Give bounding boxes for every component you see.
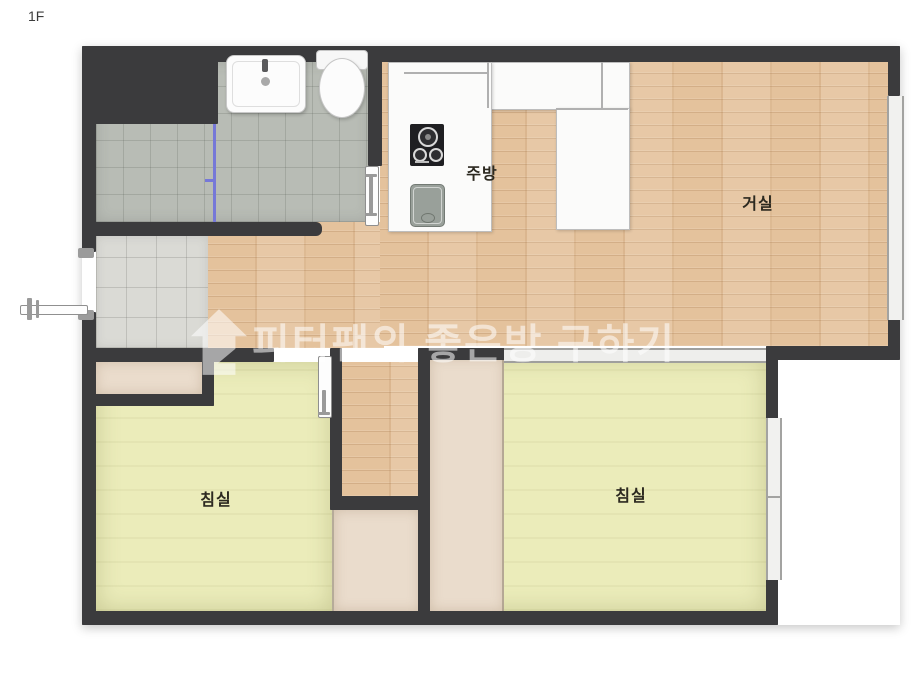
- bathroom-door-handle-top: [365, 174, 377, 177]
- closet-left-wall-bottom: [88, 394, 214, 406]
- burner-large-center: [425, 134, 431, 140]
- kitchen-sink-drain: [421, 213, 435, 223]
- living-room-label: 거실: [742, 190, 773, 214]
- wall-right-upper-a: [888, 46, 900, 96]
- burner-large: [418, 127, 438, 147]
- bathroom-dark-block: [88, 46, 218, 124]
- wall-center-vertical: [418, 348, 430, 625]
- wall-hallway-bottom: [330, 496, 430, 510]
- stove-icon: [410, 124, 444, 166]
- shower-partition-tick: [205, 179, 214, 182]
- living-room-window: [887, 96, 904, 320]
- burner-small-left: [413, 148, 427, 162]
- sink-faucet: [262, 59, 268, 72]
- sink-icon: [226, 55, 306, 113]
- counter-edge-line-v1: [487, 62, 489, 108]
- bedroom-left-label: 침실: [200, 486, 231, 510]
- bedroom-left-closet: [96, 362, 202, 394]
- entrance-door-handle-bar: [36, 300, 39, 318]
- floorplan-page: 1F: [0, 0, 923, 676]
- entrance-jamb-cap-top: [78, 248, 94, 258]
- closet-divider-line: [502, 358, 504, 611]
- storage-room-floor: [332, 510, 420, 611]
- bedroom-right-label: 침실: [615, 482, 646, 506]
- house-icon: [190, 306, 248, 378]
- bedroom-left-door-handle: [322, 390, 326, 414]
- sink-drain: [261, 77, 270, 86]
- counter-edge-line-v2: [601, 62, 603, 108]
- kitchen-sink-icon: [410, 184, 445, 227]
- toilet-icon: [319, 58, 365, 118]
- wall-bedroom-right-b: [766, 578, 778, 625]
- bathroom-door-handle-bottom: [365, 213, 377, 216]
- bedroom-left-door-handle-bar: [318, 412, 330, 415]
- bathroom-door-handle: [369, 176, 373, 214]
- kitchen-label: 주방: [466, 160, 497, 184]
- wall-bathroom-right: [368, 46, 382, 166]
- entrance-door-handle: [27, 298, 32, 320]
- burner-small-right: [429, 148, 443, 162]
- counter-edge-line-h1: [404, 72, 488, 74]
- hallway-floor: [342, 362, 418, 496]
- counter-edge-line-h2: [556, 108, 628, 110]
- floor-label: 1F: [28, 8, 44, 24]
- bedroom-right-window: [766, 418, 782, 580]
- bedroom-right-closet: [430, 358, 504, 611]
- wall-living-bottom: [766, 346, 900, 360]
- window-sash-divider: [768, 496, 780, 498]
- wall-bedroom-right-a: [766, 346, 778, 420]
- wall-bottom: [82, 611, 778, 625]
- shower-partition: [213, 124, 216, 222]
- watermark-text: 피터팬의 좋은방 구하기: [252, 310, 676, 370]
- stove-knobs: [415, 161, 429, 163]
- kitchen-cabinet-block: [556, 108, 630, 230]
- wall-bathroom-bottom: [88, 222, 322, 236]
